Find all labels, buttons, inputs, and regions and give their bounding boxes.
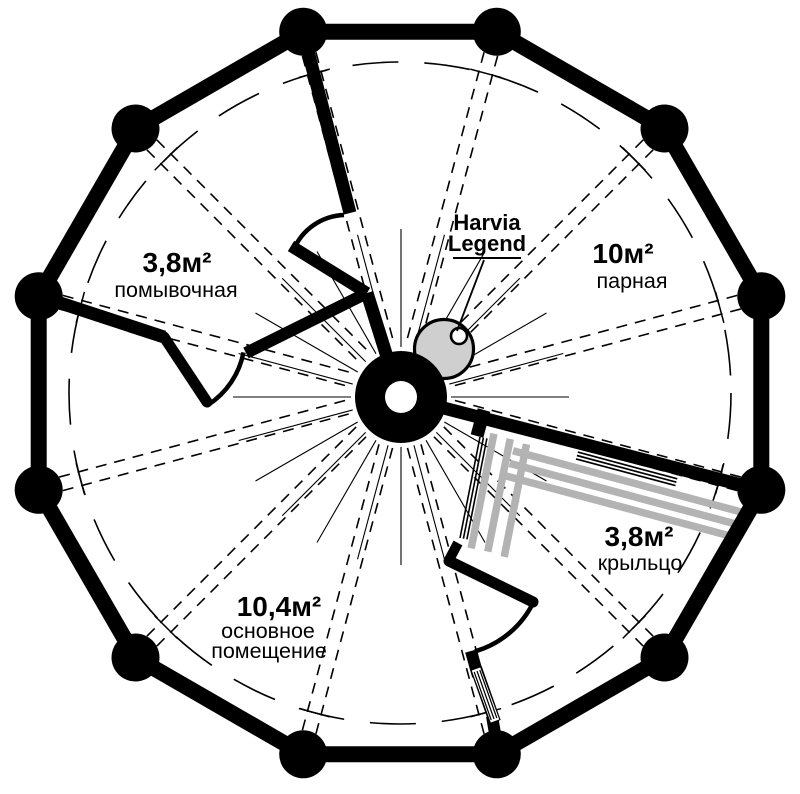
log-end-circle <box>279 8 327 56</box>
rafter-dashed-line <box>451 295 738 372</box>
log-end-circle <box>737 466 785 514</box>
rafter-dashed-line <box>455 400 742 477</box>
washroom-area-label: 3,8м² <box>143 247 212 278</box>
spoke-line <box>282 432 365 515</box>
eave-tick <box>623 148 646 171</box>
eave-tick <box>623 616 646 639</box>
porch-railing-post-top <box>477 410 484 436</box>
wall-center-stem <box>367 293 388 360</box>
floor-plan-canvas: Harvia Legend 3,8м² помывочная 10м² парн… <box>0 0 800 794</box>
rafter-dashed-line <box>316 448 393 735</box>
sauna-floor-plan: Harvia Legend 3,8м² помывочная 10м² парн… <box>0 0 800 794</box>
log-end-circle <box>15 272 63 320</box>
eave-tick <box>76 463 84 494</box>
steam-area-label: 10м² <box>592 238 653 269</box>
spoke-line <box>358 445 389 559</box>
porch-door-arc <box>475 602 534 652</box>
eave-tick <box>470 69 501 77</box>
steam-name-label: парная <box>596 269 667 293</box>
washroom-name-label: помывочная <box>114 278 237 302</box>
eave-tick <box>716 292 724 323</box>
spoke-line <box>239 354 353 385</box>
spoke-line <box>256 422 358 481</box>
rafter-dashed-line <box>421 55 498 342</box>
log-end-circle <box>641 105 689 153</box>
rafter-dashed-line <box>58 400 345 477</box>
main-name-label-2: помещение <box>211 639 327 663</box>
wall-washroom-door-side <box>291 246 367 293</box>
eave-tick <box>155 148 178 171</box>
rafter-dashed-line <box>62 295 349 372</box>
spoke-line <box>414 445 445 559</box>
wall-top-radial <box>303 32 350 213</box>
log-end-circle <box>279 730 327 778</box>
log-end-circle <box>112 105 160 153</box>
eave-tick <box>299 709 330 717</box>
rafter-dashed-line <box>407 51 484 338</box>
heater-leader-line <box>457 260 484 331</box>
log-end-circle <box>473 730 521 778</box>
left-door-leaf <box>164 337 207 402</box>
eave-tick <box>155 616 178 639</box>
washroom-door-arc <box>294 215 344 250</box>
wall-porch-top-radial <box>401 397 761 490</box>
rafter-dashed-line <box>302 444 379 731</box>
heater-callout: Harvia Legend <box>448 210 526 331</box>
log-end-circle <box>737 272 785 320</box>
heater-model-label: Legend <box>448 231 526 256</box>
rafter-dashed-line <box>455 309 742 386</box>
central-pillar <box>355 351 447 443</box>
log-end-circle <box>15 466 63 514</box>
log-end-circle <box>473 8 521 56</box>
porch-window <box>474 668 497 722</box>
log-end-circle <box>112 634 160 682</box>
spoke-line <box>239 410 353 441</box>
porch-name-label: крыльцо <box>598 551 683 575</box>
log-end-circle <box>641 634 689 682</box>
main-area-label: 10,4м² <box>237 591 322 622</box>
porch-area-label: 3,8м² <box>605 521 674 552</box>
